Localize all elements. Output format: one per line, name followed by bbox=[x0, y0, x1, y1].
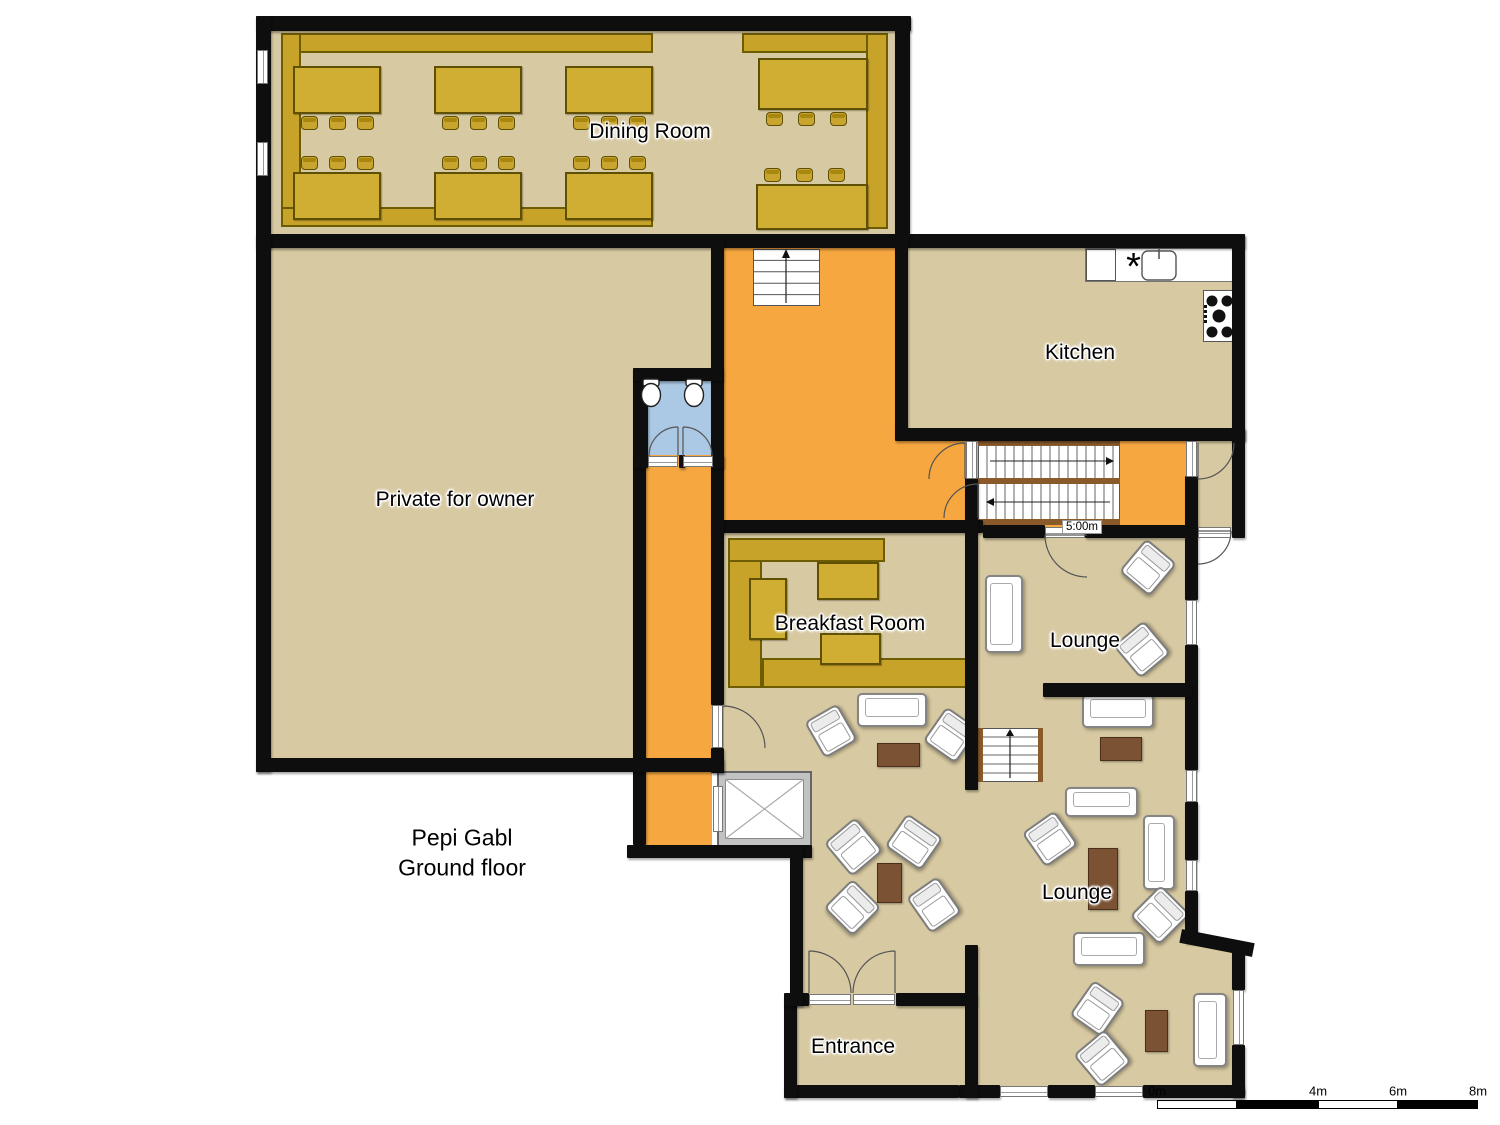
room-floor bbox=[646, 455, 712, 847]
chair bbox=[830, 112, 847, 126]
dining-table bbox=[565, 172, 653, 220]
chair bbox=[498, 116, 515, 130]
sofa bbox=[1073, 932, 1145, 966]
wall bbox=[712, 455, 724, 468]
chair bbox=[498, 156, 515, 170]
chair bbox=[573, 116, 590, 130]
chair bbox=[470, 116, 487, 130]
chair bbox=[357, 156, 374, 170]
wall bbox=[983, 525, 1045, 538]
stair-dimension-label: 5:00m bbox=[1062, 520, 1102, 534]
stair-rail bbox=[978, 728, 983, 782]
room-label-dining: Dining Room bbox=[589, 120, 710, 144]
door-threshold bbox=[683, 456, 713, 467]
room-label-private: Private for owner bbox=[376, 488, 535, 512]
window bbox=[1186, 770, 1197, 802]
dining-table bbox=[820, 633, 881, 665]
sofa bbox=[857, 693, 927, 727]
scale-bar-segment bbox=[1318, 1100, 1398, 1109]
chair bbox=[442, 156, 459, 170]
room-floor bbox=[712, 858, 790, 1108]
sofa-seat bbox=[865, 698, 919, 717]
wall bbox=[1185, 645, 1198, 770]
dining-table bbox=[817, 562, 879, 600]
wall bbox=[895, 428, 1245, 441]
wall bbox=[1048, 1085, 1095, 1098]
sofa-seat bbox=[1073, 792, 1130, 807]
room-label-breakfast: Breakfast Room bbox=[775, 612, 926, 636]
sofa-seat bbox=[1090, 699, 1146, 718]
wall bbox=[1185, 538, 1198, 600]
wall bbox=[711, 240, 724, 705]
room-floor bbox=[640, 373, 717, 457]
chair bbox=[573, 156, 590, 170]
sofa-seat bbox=[1148, 823, 1165, 882]
wall bbox=[711, 520, 983, 533]
wall bbox=[256, 234, 271, 772]
window bbox=[257, 50, 268, 84]
wall bbox=[895, 16, 910, 241]
wall bbox=[633, 455, 646, 845]
wall bbox=[1232, 234, 1245, 440]
scale-bar-segment bbox=[1398, 1100, 1478, 1109]
dining-table bbox=[293, 66, 381, 114]
scale-label-0m: 0m bbox=[1148, 1084, 1166, 1099]
window bbox=[1186, 441, 1197, 477]
door-threshold bbox=[853, 994, 895, 1005]
window bbox=[1186, 860, 1197, 891]
stair-rail bbox=[978, 478, 1120, 484]
dining-table bbox=[756, 184, 868, 230]
dining-table bbox=[293, 172, 381, 220]
wall bbox=[784, 1085, 959, 1098]
floor-plan bbox=[0, 0, 1500, 1125]
dishwasher-icon bbox=[1086, 249, 1116, 281]
bench bbox=[728, 538, 885, 562]
wall bbox=[256, 16, 911, 31]
dining-table bbox=[758, 58, 868, 110]
coffee-table bbox=[1145, 1010, 1168, 1052]
chair bbox=[329, 116, 346, 130]
sofa bbox=[1065, 787, 1138, 817]
chair bbox=[766, 112, 783, 126]
chair bbox=[629, 156, 646, 170]
chair bbox=[764, 168, 781, 182]
door-threshold bbox=[648, 456, 678, 467]
coffee-table bbox=[877, 863, 902, 903]
sofa bbox=[1193, 993, 1227, 1067]
chair bbox=[301, 156, 318, 170]
dining-table bbox=[434, 66, 522, 114]
scale-label-6m: 6m bbox=[1389, 1084, 1407, 1099]
room-label-lounge-upper: Lounge bbox=[1050, 629, 1120, 653]
sofa-seat bbox=[990, 583, 1013, 645]
coffee-table bbox=[877, 743, 920, 767]
bench bbox=[281, 33, 653, 53]
chair bbox=[301, 116, 318, 130]
chair bbox=[796, 168, 813, 182]
chair bbox=[329, 156, 346, 170]
chair bbox=[357, 116, 374, 130]
wall bbox=[256, 758, 724, 772]
bench bbox=[866, 33, 888, 229]
sofa-seat bbox=[1081, 937, 1137, 956]
wall bbox=[1043, 683, 1192, 697]
floor-plan-page: * Dining Room Kitchen Private for owner … bbox=[0, 0, 1500, 1125]
plan-subtitle: Ground floor bbox=[398, 855, 526, 882]
scale-label-4m: 4m bbox=[1309, 1084, 1327, 1099]
sofa bbox=[985, 575, 1023, 653]
plan-title: Pepi Gabl bbox=[411, 825, 512, 852]
scale-bar-segment bbox=[1237, 1100, 1318, 1109]
room-label-lounge-main: Lounge bbox=[1042, 881, 1112, 905]
window bbox=[1000, 1086, 1048, 1097]
wall bbox=[965, 945, 978, 1098]
door-threshold bbox=[712, 705, 723, 748]
stairs-mid bbox=[978, 728, 1043, 782]
chair bbox=[601, 156, 618, 170]
wall bbox=[784, 998, 797, 1098]
room-label-entrance: Entrance bbox=[811, 1035, 895, 1059]
stair-rail bbox=[1038, 728, 1043, 782]
sofa bbox=[1143, 815, 1175, 890]
window bbox=[1095, 1086, 1143, 1097]
room-label-kitchen: Kitchen bbox=[1045, 341, 1115, 365]
wall bbox=[1185, 802, 1198, 860]
chair bbox=[828, 168, 845, 182]
window bbox=[1233, 990, 1244, 1045]
stairs-small bbox=[753, 249, 820, 306]
sofa-seat bbox=[1198, 1001, 1217, 1059]
wall bbox=[633, 368, 648, 468]
door-threshold bbox=[966, 441, 977, 479]
door-threshold bbox=[1198, 527, 1231, 538]
wall bbox=[790, 845, 803, 1006]
coffee-table bbox=[1100, 737, 1142, 761]
chair bbox=[798, 112, 815, 126]
dining-table bbox=[565, 66, 653, 114]
sofa bbox=[1082, 694, 1154, 728]
wall bbox=[627, 845, 812, 858]
room-floor bbox=[1198, 693, 1238, 945]
chair bbox=[470, 156, 487, 170]
window bbox=[1186, 600, 1197, 645]
scale-label-8m: 8m bbox=[1469, 1084, 1487, 1099]
chair bbox=[442, 116, 459, 130]
stair-rail bbox=[978, 441, 1120, 446]
elevator-cab bbox=[725, 779, 804, 839]
door-threshold bbox=[809, 994, 851, 1005]
scale-bar-segment bbox=[1157, 1100, 1237, 1109]
wall bbox=[633, 368, 723, 381]
wall bbox=[895, 241, 908, 435]
window bbox=[257, 142, 268, 176]
wall bbox=[1232, 428, 1245, 538]
door-threshold bbox=[713, 786, 723, 832]
wall bbox=[965, 478, 978, 790]
wall bbox=[256, 234, 1245, 248]
wall bbox=[1232, 950, 1245, 990]
dining-table bbox=[434, 172, 522, 220]
